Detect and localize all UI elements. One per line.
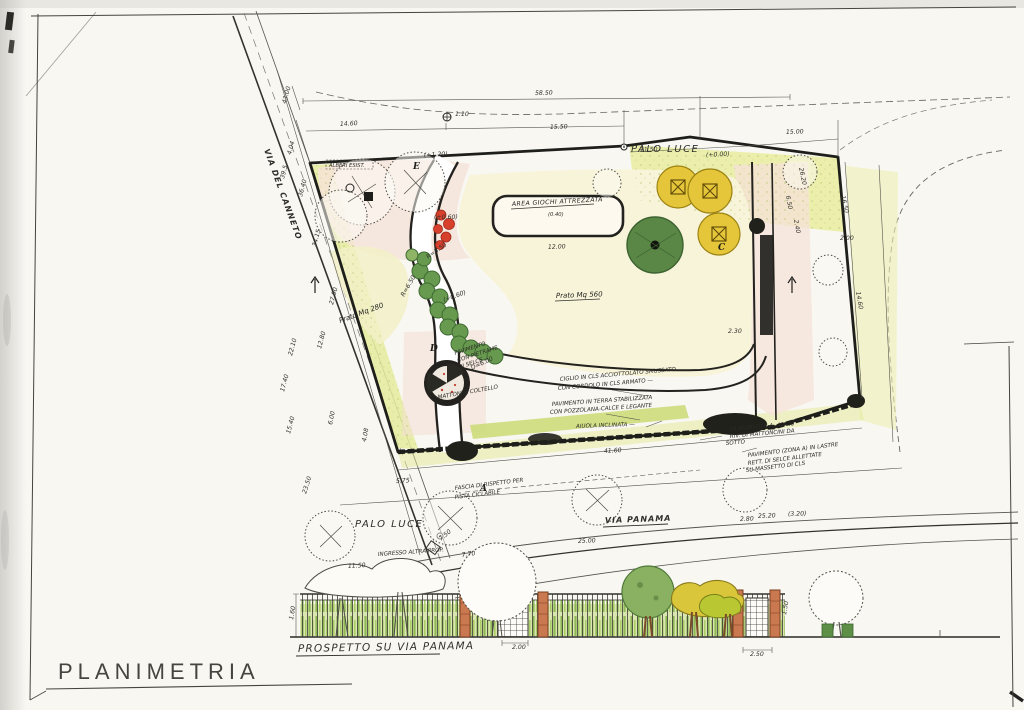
marker-text: C bbox=[718, 243, 726, 253]
dim-text: 17.40 bbox=[279, 374, 290, 393]
dim-text: 2.00 bbox=[840, 235, 854, 242]
marker-text: E bbox=[412, 162, 420, 172]
dim-text: 15.40 bbox=[285, 416, 296, 435]
elevation-title: PROSPETTO SU VIA PANAMA bbox=[298, 640, 474, 655]
dim-text: 41.60 bbox=[604, 447, 622, 455]
dim-text: 25.00 bbox=[578, 537, 596, 545]
dim-text: (+0.60) bbox=[434, 214, 458, 221]
dim-text: 15.50 bbox=[550, 123, 568, 131]
dim-text: 12.80 bbox=[316, 331, 327, 350]
dim-text: 2.50 bbox=[750, 651, 764, 658]
note-text: SOTTO bbox=[726, 439, 746, 447]
dim-text: 5.75 bbox=[396, 477, 410, 485]
note-text: INGRESSO ALTRA PROP. bbox=[378, 547, 445, 558]
palo-luce-bottom-label: PALO LUCE bbox=[355, 519, 423, 530]
right-road-dashed bbox=[888, 150, 1006, 452]
alberi-esistenti-label: ALBERI ESIST. bbox=[328, 163, 365, 169]
dim-text: 34.15 bbox=[311, 229, 322, 248]
dim-text: 12.00 bbox=[548, 243, 566, 251]
dim-text: 2.80 bbox=[740, 516, 754, 523]
dim-text: 27.90 bbox=[328, 287, 339, 306]
plan-title: PLANIMETRIA bbox=[58, 659, 260, 684]
drawing-sheet: PLANIMETRIA PROSPETTO SU VIA PANAMA VIA … bbox=[0, 0, 1024, 710]
dim-text: 6.00 bbox=[327, 410, 337, 425]
top-property-dashed-line bbox=[316, 92, 1010, 114]
dim-text: 4.04 bbox=[286, 140, 296, 155]
marker-text: A bbox=[479, 484, 487, 494]
dim-text: 1.50 bbox=[781, 601, 790, 616]
via-panama-label: VIA PANAMA bbox=[605, 514, 672, 525]
dim-text: (3.20) bbox=[788, 510, 807, 518]
dim-text: (+1.20) bbox=[424, 151, 448, 159]
dim-text: 14.60 bbox=[340, 120, 358, 128]
dim-text: 58.50 bbox=[535, 90, 553, 97]
prato-560-label: Prato Mq 560 bbox=[556, 290, 604, 300]
dim-text: 15.00 bbox=[786, 128, 804, 136]
dim-text: 4.08 bbox=[361, 428, 370, 443]
area-giochi-quota: (0.40) bbox=[548, 212, 564, 218]
dim-text: 1.10 bbox=[455, 111, 469, 118]
dim-text: 2.30 bbox=[728, 328, 742, 335]
dim-text: 11.50 bbox=[640, 146, 658, 154]
site-plan-drawing: PLANIMETRIA PROSPETTO SU VIA PANAMA VIA … bbox=[0, 0, 1024, 710]
dim-text: 39.5 bbox=[279, 164, 289, 179]
elevation-prospetto bbox=[290, 543, 1000, 637]
dim-text: 11.50 bbox=[348, 562, 366, 570]
marker-text: D bbox=[429, 344, 438, 354]
dim-text: (+0.00) bbox=[706, 151, 730, 159]
dim-text: 43.00 bbox=[281, 86, 292, 105]
dim-text: 22.10 bbox=[287, 338, 298, 357]
dim-text: 25.20 bbox=[758, 512, 776, 520]
dim-text: 2.00 bbox=[512, 644, 526, 651]
dim-text: 23.50 bbox=[301, 476, 313, 495]
